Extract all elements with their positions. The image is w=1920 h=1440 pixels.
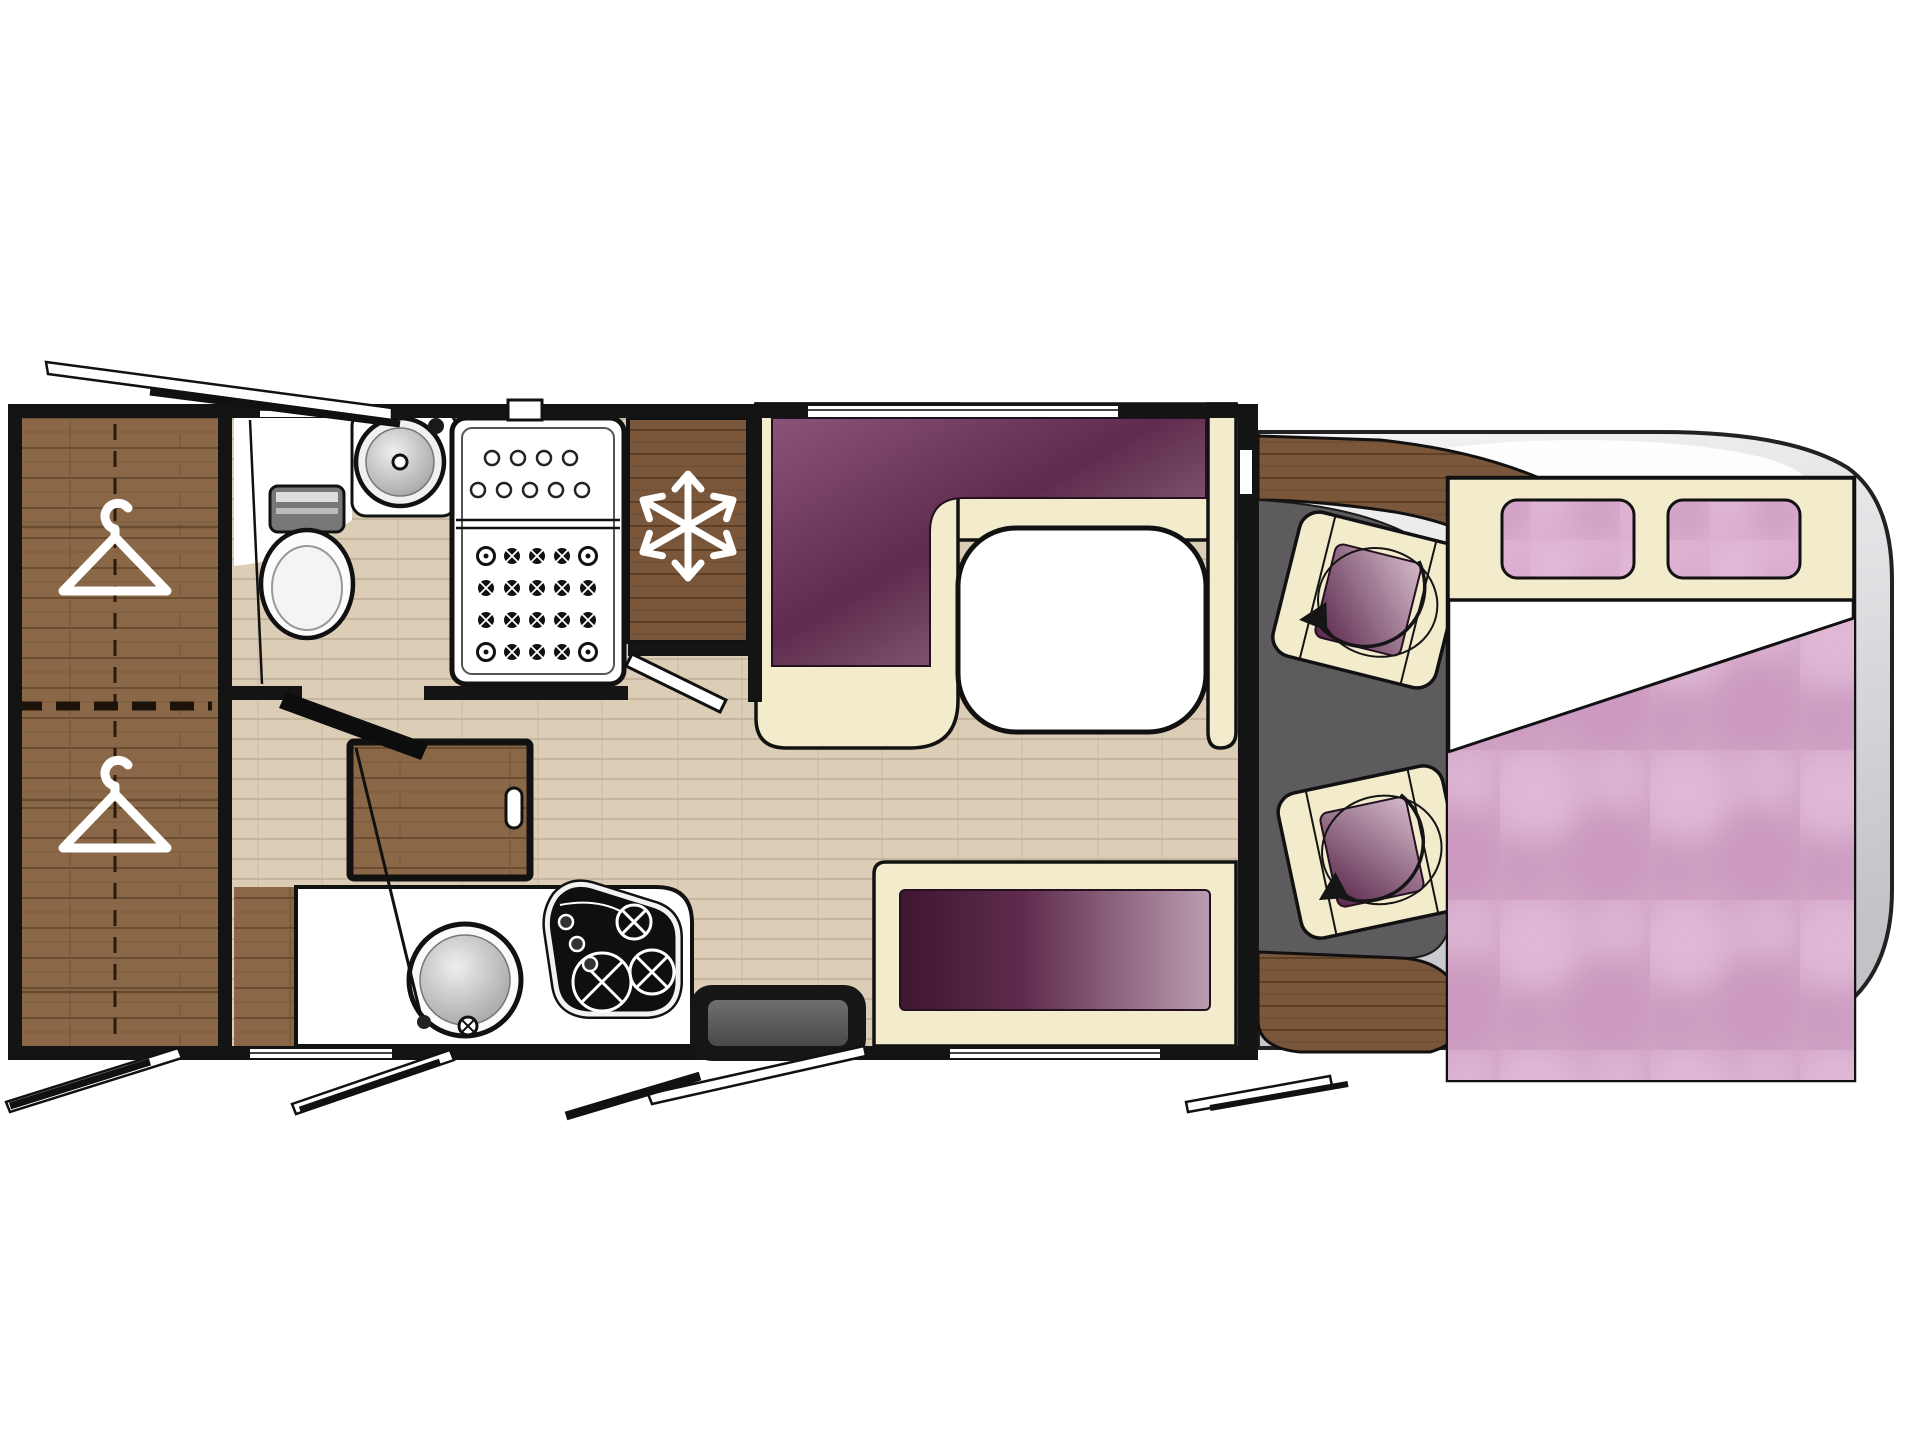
entry-step bbox=[690, 985, 866, 1061]
swivel-seat bbox=[1274, 762, 1469, 942]
shower-roof-vent bbox=[508, 400, 542, 420]
hob bbox=[547, 884, 678, 1014]
shower bbox=[452, 418, 624, 684]
open-window-flap bbox=[1186, 1076, 1348, 1112]
cab-rear-wood-trim bbox=[1258, 952, 1464, 1052]
floorplan-stage: Motorhome floor plan — top view bbox=[0, 0, 1920, 1440]
wardrobe bbox=[18, 418, 218, 1046]
desk-handle bbox=[506, 788, 522, 828]
dinette-table bbox=[958, 528, 1206, 732]
bench-cushion bbox=[900, 890, 1210, 1010]
drop-down-bed bbox=[1448, 478, 1854, 1080]
side-bench bbox=[874, 862, 1236, 1046]
kitchen bbox=[234, 884, 692, 1046]
pillow bbox=[1502, 500, 1634, 578]
fridge bbox=[628, 418, 748, 642]
motorhome-floorplan: Motorhome floor plan — top view bbox=[0, 0, 1920, 1440]
basin-tap bbox=[428, 418, 444, 434]
sink-tap bbox=[417, 1015, 431, 1029]
pillow bbox=[1668, 500, 1800, 578]
